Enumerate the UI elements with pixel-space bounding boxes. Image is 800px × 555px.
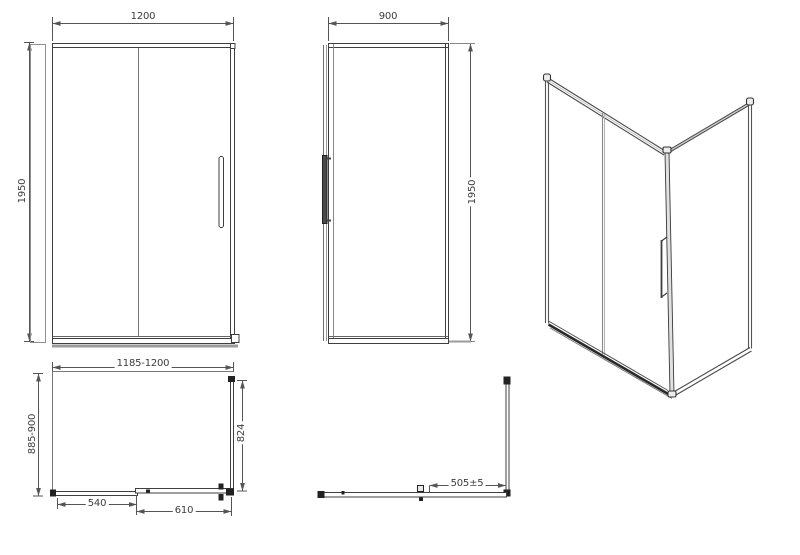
- drawing-linework: [0, 0, 800, 555]
- plan-fixed-dim-label: 540: [86, 499, 109, 509]
- plan-door-dim-label: 610: [173, 506, 196, 516]
- plan-glass-dim-label: 824: [237, 422, 247, 445]
- iso-view-drawing: [544, 74, 754, 399]
- front-height-dim-label: 1950: [18, 177, 28, 206]
- plan-view-drawing: [33, 362, 247, 516]
- side-view-drawing: [323, 17, 476, 344]
- plan-width-dim-label: 1185-1200: [115, 359, 172, 369]
- plan-depth-dim-label: 885-900: [28, 412, 38, 456]
- front-width-dim-label: 1200: [129, 12, 158, 22]
- side-height-dim-label: 1950: [468, 178, 478, 207]
- side-width-dim-label: 900: [377, 12, 400, 22]
- front-view-drawing: [24, 17, 239, 346]
- technical-drawing-canvas: 1200 1950 900 1950 1185-1200 885-900 824…: [0, 0, 800, 555]
- corner-offset-dim-label: 505±5: [449, 479, 486, 489]
